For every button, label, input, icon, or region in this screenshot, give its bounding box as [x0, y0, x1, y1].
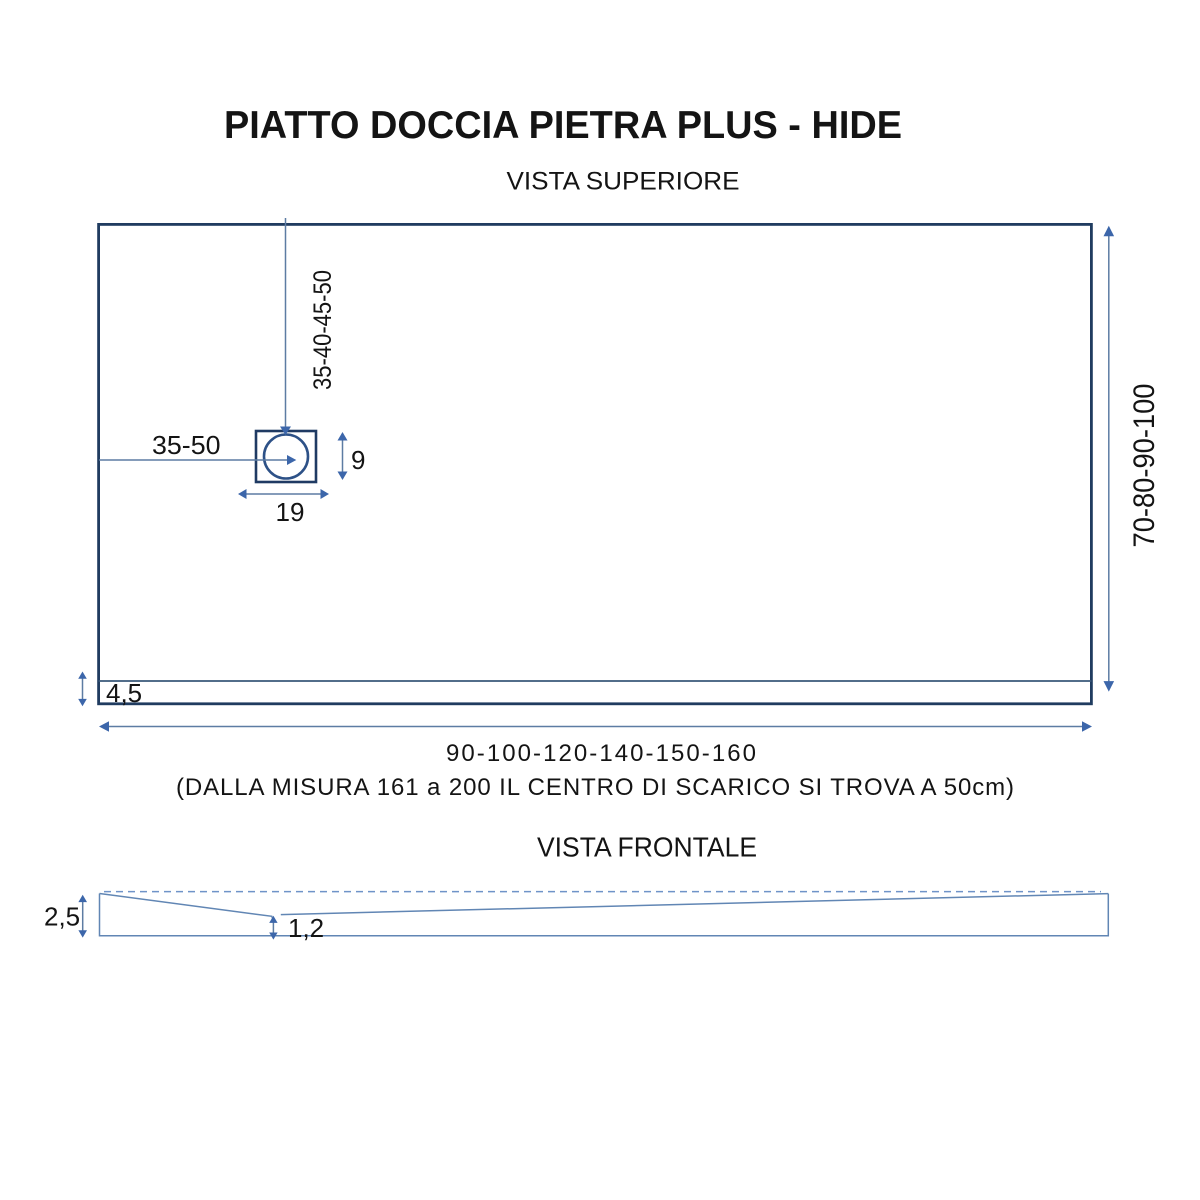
svg-text:VISTA SUPERIORE: VISTA SUPERIORE — [507, 167, 740, 195]
svg-text:35-40-45-50: 35-40-45-50 — [309, 270, 337, 390]
svg-text:(DALLA MISURA 161 a 200 IL CEN: (DALLA MISURA 161 a 200 IL CENTRO DI SCA… — [176, 774, 1014, 801]
svg-text:35-50: 35-50 — [152, 430, 221, 460]
svg-text:4,5: 4,5 — [106, 678, 142, 708]
svg-text:90-100-120-140-150-160: 90-100-120-140-150-160 — [446, 740, 756, 767]
svg-text:70-80-90-100: 70-80-90-100 — [1128, 384, 1161, 548]
svg-text:PIATTO DOCCIA PIETRA PLUS - HI: PIATTO DOCCIA PIETRA PLUS - HIDE — [224, 104, 902, 147]
svg-text:1,2: 1,2 — [288, 913, 324, 943]
svg-text:VISTA FRONTALE: VISTA FRONTALE — [537, 831, 757, 862]
svg-text:2,5: 2,5 — [44, 901, 80, 931]
svg-text:19: 19 — [276, 497, 305, 527]
svg-text:9: 9 — [351, 445, 365, 475]
